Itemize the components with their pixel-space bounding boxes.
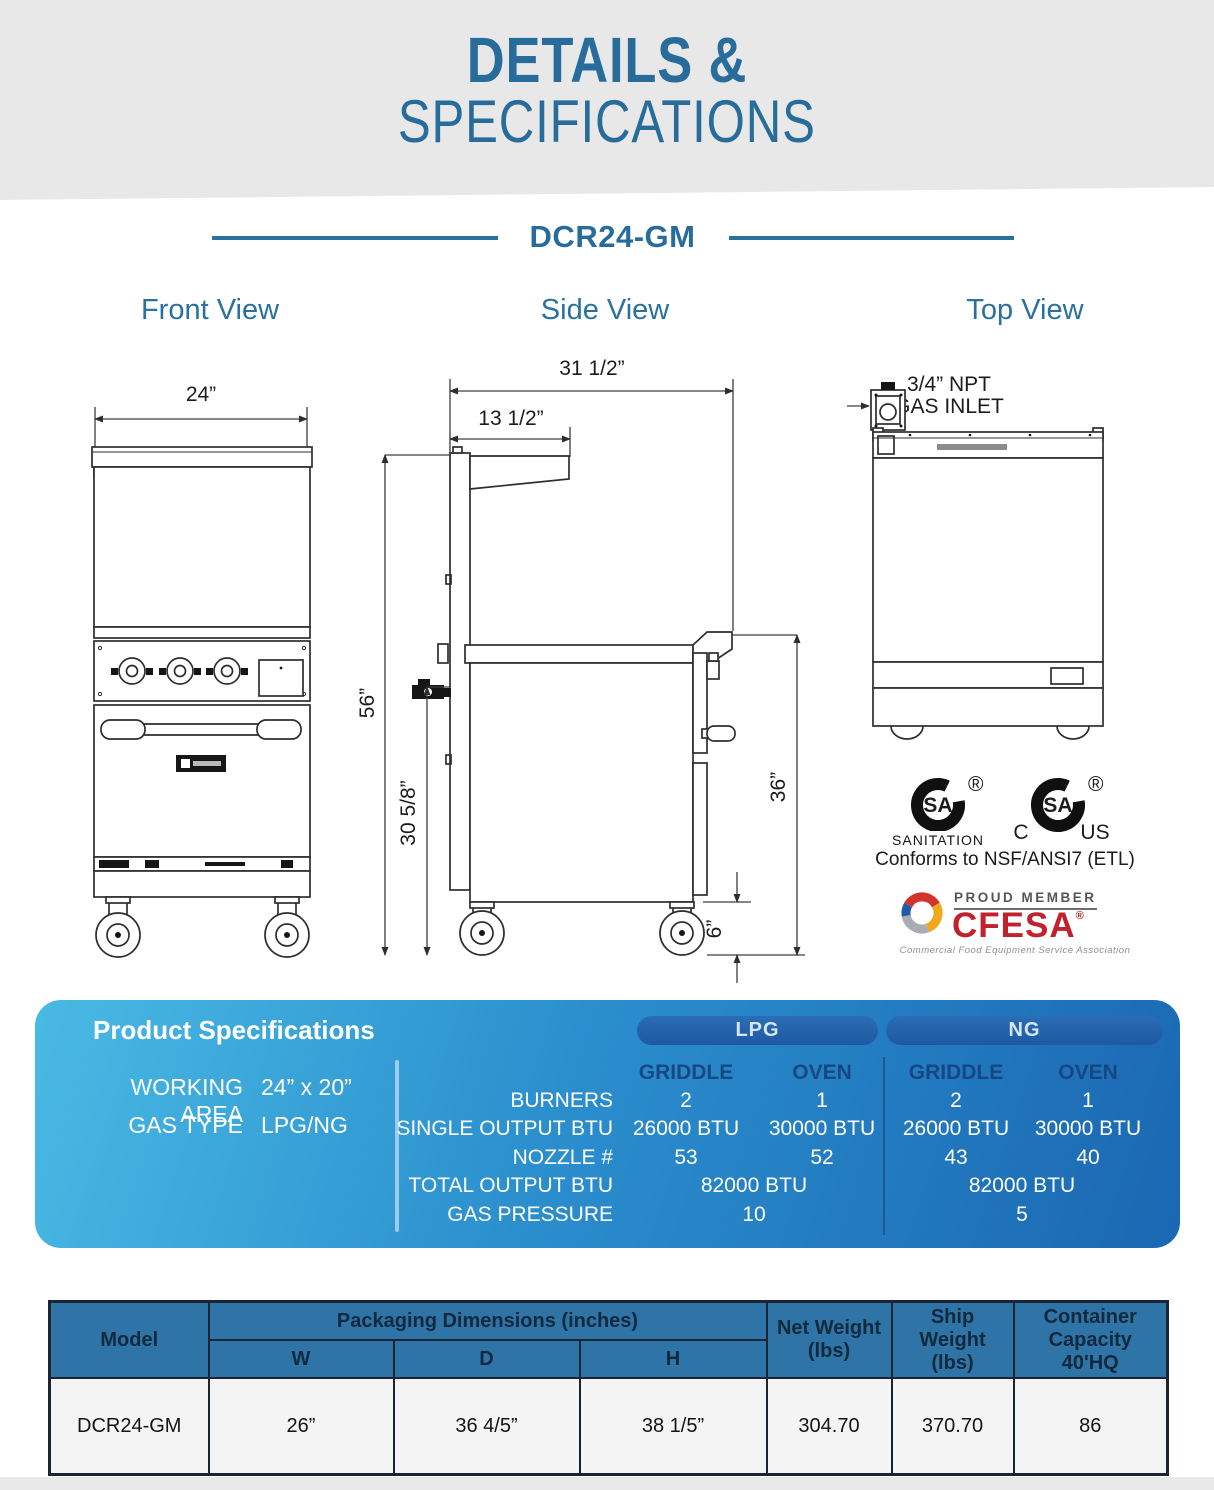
- gas-pressure-label: GAS PRESSURE: [335, 1203, 613, 1227]
- registered-mark: ®: [968, 775, 984, 796]
- csa-c-us-logo: SA ® C US: [1003, 775, 1113, 845]
- lpg-griddle-btu: 26000 BTU: [621, 1117, 751, 1141]
- side-body-height-dim: 30 5/8”: [397, 780, 420, 845]
- cfesa-name: CFESA®: [952, 906, 1085, 946]
- lpg-griddle-nozzle: 53: [621, 1146, 751, 1170]
- model-divider-left: [212, 236, 498, 240]
- front-view-label: Front View: [85, 294, 335, 327]
- cfesa-badge: PROUD MEMBER CFESA® Commercial Food Equi…: [890, 882, 1140, 960]
- total-output-label: TOTAL OUTPUT BTU: [335, 1174, 613, 1198]
- ng-griddle-burners: 2: [891, 1089, 1021, 1113]
- front-view-drawing: 24”: [85, 335, 320, 970]
- table-row: DCR24-GM 26” 36 4/5” 38 1/5” 304.70 370.…: [50, 1378, 1168, 1475]
- registered-mark: ®: [1088, 775, 1104, 796]
- page-title-line2: SPECIFICATIONS: [0, 92, 1214, 152]
- depth-subheader: D: [394, 1340, 580, 1378]
- single-output-label: SINGLE OUTPUT BTU: [335, 1117, 613, 1141]
- ng-oven-btu: 30000 BTU: [1023, 1117, 1153, 1141]
- spec-panel-title: Product Specifications: [93, 1015, 375, 1046]
- width-subheader: W: [209, 1340, 394, 1378]
- bottom-divider-strip: [0, 1477, 1214, 1490]
- side-work-height-dim: 36”: [767, 772, 790, 802]
- ng-oven-burners: 1: [1023, 1089, 1153, 1113]
- lpg-group-header: LPG: [637, 1016, 878, 1045]
- ng-griddle-btu: 26000 BTU: [891, 1117, 1021, 1141]
- side-view-label: Side View: [480, 294, 730, 327]
- packaging-dimensions-header: Packaging Dimensions (inches): [209, 1302, 767, 1341]
- side-shelf-dim: 13 1/2”: [478, 407, 543, 430]
- lpg-total-btu: 82000 BTU: [664, 1174, 844, 1198]
- ng-gas-pressure: 5: [932, 1203, 1112, 1227]
- csa-sanitation-label: SANITATION: [888, 832, 988, 848]
- lpg-oven-nozzle: 52: [757, 1146, 887, 1170]
- side-caster-dim: 6”: [703, 920, 726, 939]
- gas-valve: [412, 679, 451, 699]
- csa-sanitation-logo: SA ®: [888, 775, 988, 831]
- model-divider-right: [729, 236, 1014, 240]
- csa-us: US: [1080, 821, 1109, 844]
- height-cell: 38 1/5”: [580, 1378, 767, 1475]
- top-view-label: Top View: [900, 294, 1150, 327]
- side-height-dim: 56”: [356, 688, 379, 718]
- width-cell: 26”: [209, 1378, 394, 1475]
- top-view-drawing: 3/4” NPT GAS INLET: [845, 360, 1140, 755]
- depth-cell: 36 4/5”: [394, 1378, 580, 1475]
- ng-group-header: NG: [886, 1016, 1163, 1045]
- front-width-dim: 24”: [186, 383, 216, 406]
- lpg-griddle-burners: 2: [621, 1089, 751, 1113]
- csa-c: C: [1013, 821, 1028, 844]
- container-capacity-header: Container Capacity 40'HQ: [1014, 1302, 1168, 1379]
- gas-inlet-label-2: GAS INLET: [894, 395, 1004, 418]
- ship-weight-header: Ship Weight (lbs): [892, 1302, 1014, 1379]
- model-name: DCR24-GM: [470, 219, 755, 255]
- lpg-oven-header: OVEN: [757, 1061, 887, 1085]
- side-depth-dim: 31 1/2”: [559, 357, 624, 380]
- gas-type-label: GAS TYPE: [75, 1112, 243, 1139]
- container-capacity-cell: 86: [1014, 1378, 1168, 1475]
- lpg-gas-pressure: 10: [664, 1203, 844, 1227]
- product-specifications-panel: Product Specifications WORKING AREA 24” …: [35, 1000, 1180, 1248]
- ship-weight-cell: 370.70: [892, 1378, 1014, 1475]
- conformance-note: Conforms to NSF/ANSI7 (ETL): [870, 849, 1140, 871]
- ng-oven-nozzle: 40: [1023, 1146, 1153, 1170]
- model-column-header: Model: [50, 1302, 209, 1379]
- side-casters: [460, 902, 704, 955]
- gas-inlet-label-1: 3/4” NPT: [907, 373, 991, 396]
- net-weight-cell: 304.70: [767, 1378, 892, 1475]
- height-subheader: H: [580, 1340, 767, 1378]
- ng-griddle-header: GRIDDLE: [891, 1061, 1021, 1085]
- front-casters: [96, 897, 309, 957]
- ng-total-btu: 82000 BTU: [932, 1174, 1112, 1198]
- page-header: DETAILS & SPECIFICATIONS: [0, 0, 1214, 200]
- gas-inlet: [871, 382, 905, 430]
- lpg-oven-btu: 30000 BTU: [757, 1117, 887, 1141]
- lpg-oven-burners: 1: [757, 1089, 887, 1113]
- page-title-line1: DETAILS &: [0, 28, 1214, 92]
- net-weight-header: Net Weight (lbs): [767, 1302, 892, 1379]
- spec-sheet-page: DETAILS & SPECIFICATIONS DCR24-GM Front …: [0, 0, 1214, 1490]
- lpg-griddle-header: GRIDDLE: [621, 1061, 751, 1085]
- side-view-drawing: 31 1/2” 13 1/2”: [355, 335, 815, 985]
- burners-label: BURNERS: [335, 1089, 613, 1113]
- cfesa-tagline: Commercial Food Equipment Service Associ…: [890, 945, 1140, 956]
- ng-griddle-nozzle: 43: [891, 1146, 1021, 1170]
- csa-monogram: SA: [923, 794, 952, 817]
- nozzle-label: NOZZLE #: [335, 1146, 613, 1170]
- cfesa-swirl-icon: [896, 886, 948, 944]
- ng-oven-header: OVEN: [1023, 1061, 1153, 1085]
- csa-monogram: SA: [1043, 794, 1072, 817]
- packaging-table: Model Packaging Dimensions (inches) Net …: [48, 1300, 1169, 1476]
- model-cell: DCR24-GM: [50, 1378, 209, 1475]
